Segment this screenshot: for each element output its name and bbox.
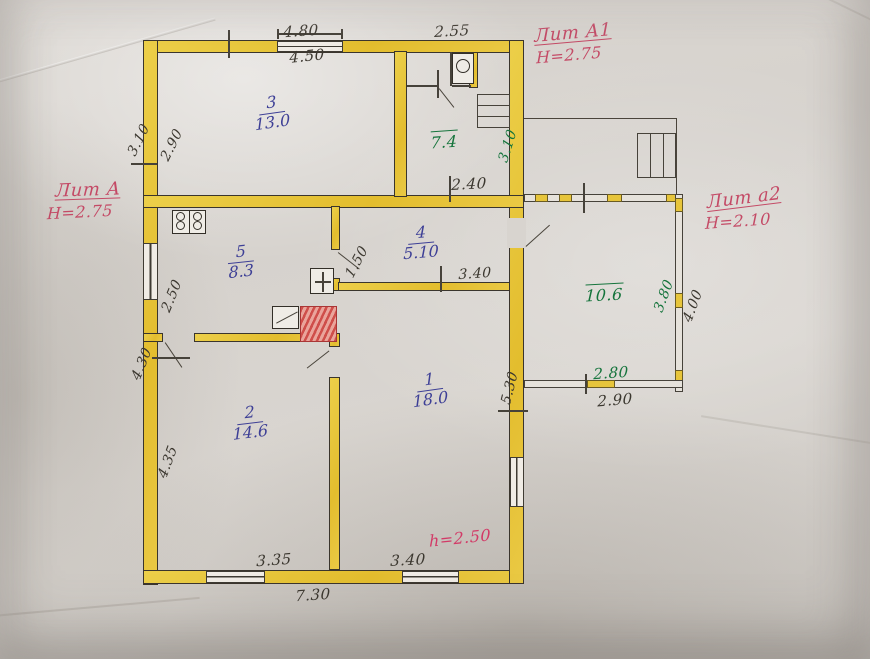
window-room1-right (510, 457, 524, 507)
paper-crease (701, 415, 870, 447)
wall-room3-hall (394, 51, 407, 197)
room-5-area: 8.3 (228, 261, 254, 282)
wall-post (535, 194, 548, 202)
litera-a1-height: Н=2.75 (536, 43, 602, 68)
step-tread (478, 105, 509, 106)
wall-room5-room4-a (331, 206, 340, 250)
paper-crease (0, 18, 216, 90)
hall-area-label: 7.4 (430, 130, 457, 153)
wall-post (675, 198, 683, 212)
dim-veranda-bottom-inner: 2.80 (593, 363, 629, 384)
door-swing (164, 342, 182, 368)
room-2-area: 14.6 (232, 421, 268, 443)
hall-partition (407, 85, 439, 87)
wall-left (143, 40, 158, 585)
room-1-label: 1 18.0 (411, 369, 448, 411)
room-3-area: 13.0 (254, 111, 290, 134)
stove-symbol (300, 306, 337, 342)
interior-steps (477, 94, 510, 128)
dimension-tick (583, 183, 585, 213)
porch-steps (637, 133, 676, 178)
toilet-bowl-icon (456, 59, 470, 73)
floor-plan-scan: 4.80 4.50 2.55 Лит А1 Н=2.75 Лит А Н=2.7… (0, 0, 870, 659)
paper-crease (0, 597, 200, 617)
door-swing (307, 350, 330, 368)
wall-post (559, 194, 572, 202)
dim-left-upper-inner: 2.90 (158, 126, 186, 164)
door-jamb-tick (437, 70, 439, 98)
dim-room4-left: 1.50 (342, 243, 371, 281)
wall-post (675, 293, 683, 308)
dimension-tick (131, 163, 157, 165)
dim-hall-bottom: 2.40 (451, 174, 487, 194)
step-tread (478, 116, 509, 117)
sink-symbol (272, 306, 299, 329)
dimension-bracket-tick (341, 29, 343, 39)
oven-cell (190, 211, 206, 233)
room-4-label: 4 5.10 (403, 223, 438, 263)
dim-top-outer: 4.80 (283, 21, 319, 42)
dim-bottom-outer: 7.30 (295, 585, 331, 606)
wall-post (607, 194, 622, 202)
door-opening-to-veranda (507, 218, 526, 248)
dim-room5-left: 2.50 (159, 277, 186, 315)
flue-cross-line (315, 281, 331, 283)
window-room1-bottom (402, 571, 459, 583)
dim-room4-bottom: 3.40 (458, 265, 491, 283)
step-tread (663, 134, 664, 177)
dim-left-lower-inner: 4.35 (155, 443, 181, 481)
dim-veranda-right-outer: 4.00 (680, 287, 706, 325)
dimension-tick (152, 357, 190, 359)
wall-room2-room1-b (329, 377, 340, 570)
dimension-tick (498, 410, 528, 412)
wall-room5-room2-a (143, 333, 163, 342)
dimension-tick (440, 266, 442, 292)
room-2-label: 2 14.6 (232, 402, 269, 443)
step-tread (650, 134, 651, 177)
veranda-wall-right (675, 194, 683, 392)
flue-box-symbol (310, 268, 334, 294)
litera-a2-height: Н=2.10 (705, 209, 771, 233)
ceiling-height-note: h=2.50 (429, 525, 491, 551)
dim-top-inner: 4.50 (289, 45, 325, 67)
room-4-area: 5.10 (403, 242, 438, 263)
paper-crease (768, 0, 870, 45)
dim-top-small: 2.55 (434, 21, 470, 41)
veranda-wall-top (524, 194, 683, 202)
wall-below-room4 (338, 282, 510, 291)
veranda-area-label: 10.6 (585, 282, 623, 305)
wall-bottom (143, 570, 524, 584)
room-3-label: 3 13.0 (253, 92, 290, 134)
door-swing (438, 88, 454, 108)
dim-bottom-room2: 3.35 (256, 550, 292, 571)
dimension-tick (228, 30, 230, 58)
room-1-area: 18.0 (412, 388, 448, 411)
room-5-label: 5 8.3 (228, 242, 255, 281)
dimension-bracket-tick (277, 29, 279, 39)
hall-partition (452, 85, 471, 87)
dim-bottom-room1: 3.40 (390, 550, 426, 570)
dimension-tick (585, 374, 587, 394)
window-room2-bottom (206, 571, 265, 583)
litera-a-label: Лит А (55, 178, 122, 201)
oven-symbol (172, 210, 206, 234)
sink-flap-line (276, 311, 298, 323)
window-room5-left (143, 243, 158, 300)
oven-cell (173, 211, 190, 233)
litera-a-height: Н=2.75 (47, 201, 114, 224)
dim-veranda-right-inner: 3.80 (651, 277, 677, 315)
dim-veranda-bottom-outer: 2.90 (597, 389, 632, 410)
door-swing (526, 225, 551, 247)
